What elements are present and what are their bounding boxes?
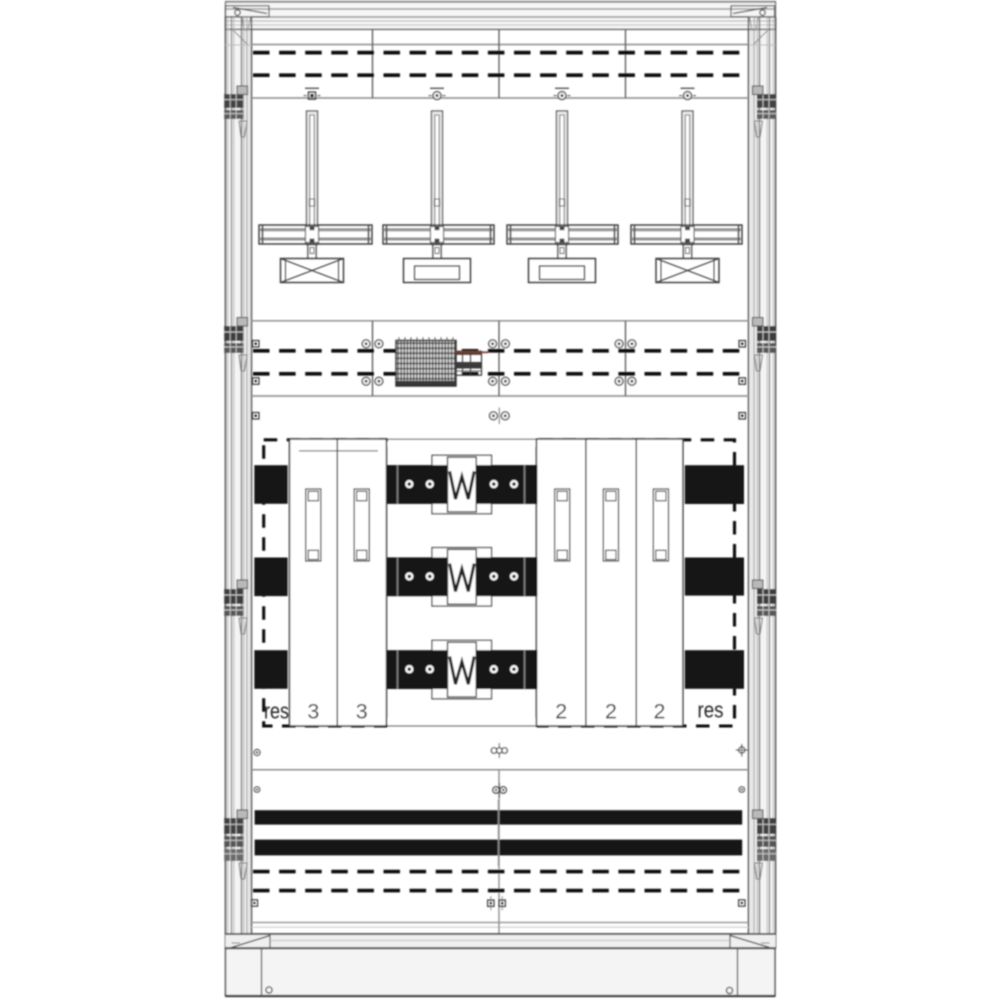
svg-text:2: 2 <box>654 700 666 724</box>
svg-text:res: res <box>264 699 289 724</box>
svg-text:3: 3 <box>307 700 319 724</box>
svg-text:3: 3 <box>356 700 368 724</box>
svg-text:2: 2 <box>605 700 617 724</box>
svg-text:2: 2 <box>555 700 567 724</box>
svg-text:res: res <box>698 698 724 723</box>
